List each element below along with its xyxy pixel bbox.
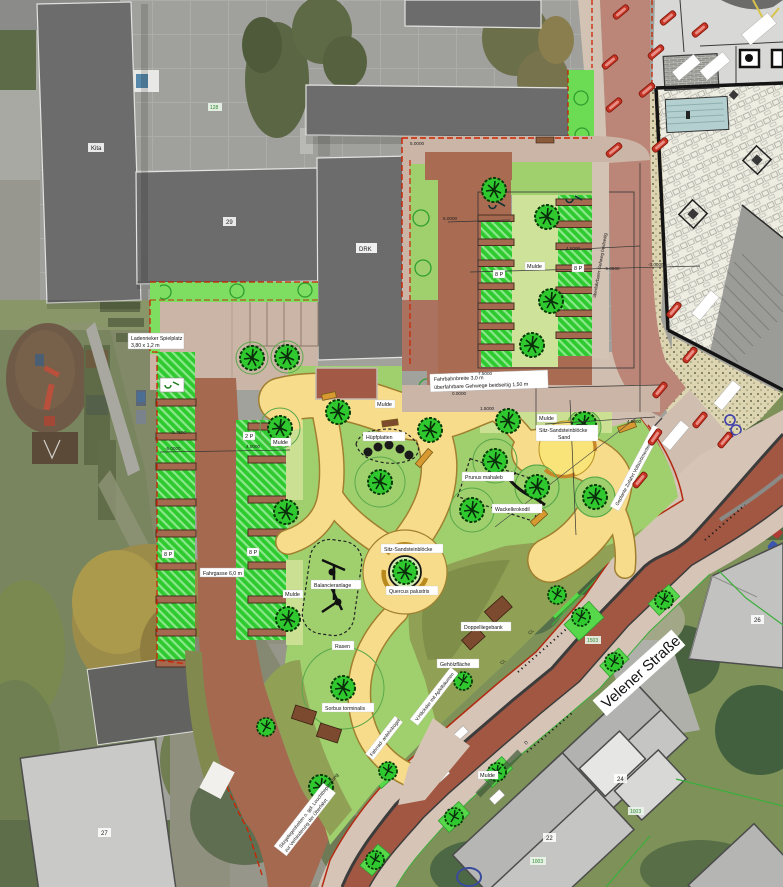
svg-text:Mulde: Mulde [273, 440, 288, 446]
svg-text:Sitz-Sandsteinblöcke: Sitz-Sandsteinblöcke [384, 547, 433, 553]
svg-text:Sorbus torminalis: Sorbus torminalis [325, 706, 365, 712]
svg-text:5.0000: 5.0000 [443, 216, 457, 221]
svg-text:Fahrgasse 6,0 m: Fahrgasse 6,0 m [203, 571, 242, 577]
svg-text:Rasen: Rasen [335, 644, 350, 650]
svg-text:1503: 1503 [587, 638, 598, 644]
svg-text:4.5000: 4.5000 [246, 444, 260, 449]
svg-text:Sitz-Sandsteinblöcke: Sitz-Sandsteinblöcke [539, 428, 588, 434]
svg-text:-3.0000: -3.0000 [648, 262, 664, 267]
svg-text:22: 22 [546, 836, 553, 842]
svg-text:0.0000: 0.0000 [452, 391, 466, 396]
svg-text:Balancieranlage: Balancieranlage [314, 583, 351, 589]
svg-text:1.5000: 1.5000 [480, 406, 494, 411]
svg-text:26: 26 [754, 618, 761, 624]
svg-text:Gehölzfläche: Gehölzfläche [440, 662, 470, 668]
svg-text:Mulde: Mulde [377, 402, 392, 408]
svg-text:Sand: Sand [558, 435, 570, 441]
svg-text:Mulde: Mulde [285, 592, 300, 598]
svg-text:Ladenrieker Spielplatz: Ladenrieker Spielplatz [131, 336, 183, 342]
svg-text:1003: 1003 [532, 859, 543, 865]
svg-text:2 P: 2 P [245, 434, 254, 440]
svg-text:Hüpfplatten: Hüpfplatten [366, 435, 393, 441]
svg-text:Prunus mahaleb: Prunus mahaleb [465, 475, 503, 481]
svg-text:Doppelliegebank: Doppelliegebank [464, 625, 503, 631]
svg-text:Mulde: Mulde [539, 416, 554, 422]
svg-text:8 P: 8 P [164, 552, 173, 558]
svg-text:8 P: 8 P [574, 266, 583, 272]
svg-text:3,80 x 1,2 m: 3,80 x 1,2 m [131, 343, 160, 349]
svg-text:5.0000: 5.0000 [410, 141, 424, 146]
svg-text:4.5000: 4.5000 [566, 246, 580, 251]
svg-text:Mulde: Mulde [480, 773, 495, 779]
svg-text:Quercus palustris: Quercus palustris [389, 589, 430, 595]
svg-text:7.5000: 7.5000 [478, 371, 492, 376]
svg-text:4.5000: 4.5000 [627, 419, 641, 424]
svg-text:Mulde: Mulde [527, 264, 542, 270]
svg-text:24: 24 [617, 777, 624, 783]
svg-text:Kita: Kita [91, 146, 102, 152]
svg-text:-5.0000: -5.0000 [604, 266, 620, 271]
svg-text:8 P: 8 P [249, 550, 258, 556]
svg-text:128: 128 [210, 105, 219, 111]
svg-text:2.7500: 2.7500 [172, 430, 186, 435]
svg-text:8 P: 8 P [495, 272, 504, 278]
svg-text:29: 29 [226, 220, 233, 226]
svg-text:Wackelkrokodil: Wackelkrokodil [495, 507, 530, 513]
svg-text:-5.0000: -5.0000 [165, 446, 181, 451]
svg-text:1003: 1003 [630, 809, 641, 815]
svg-text:27: 27 [101, 831, 108, 837]
svg-text:DRK: DRK [359, 247, 372, 253]
